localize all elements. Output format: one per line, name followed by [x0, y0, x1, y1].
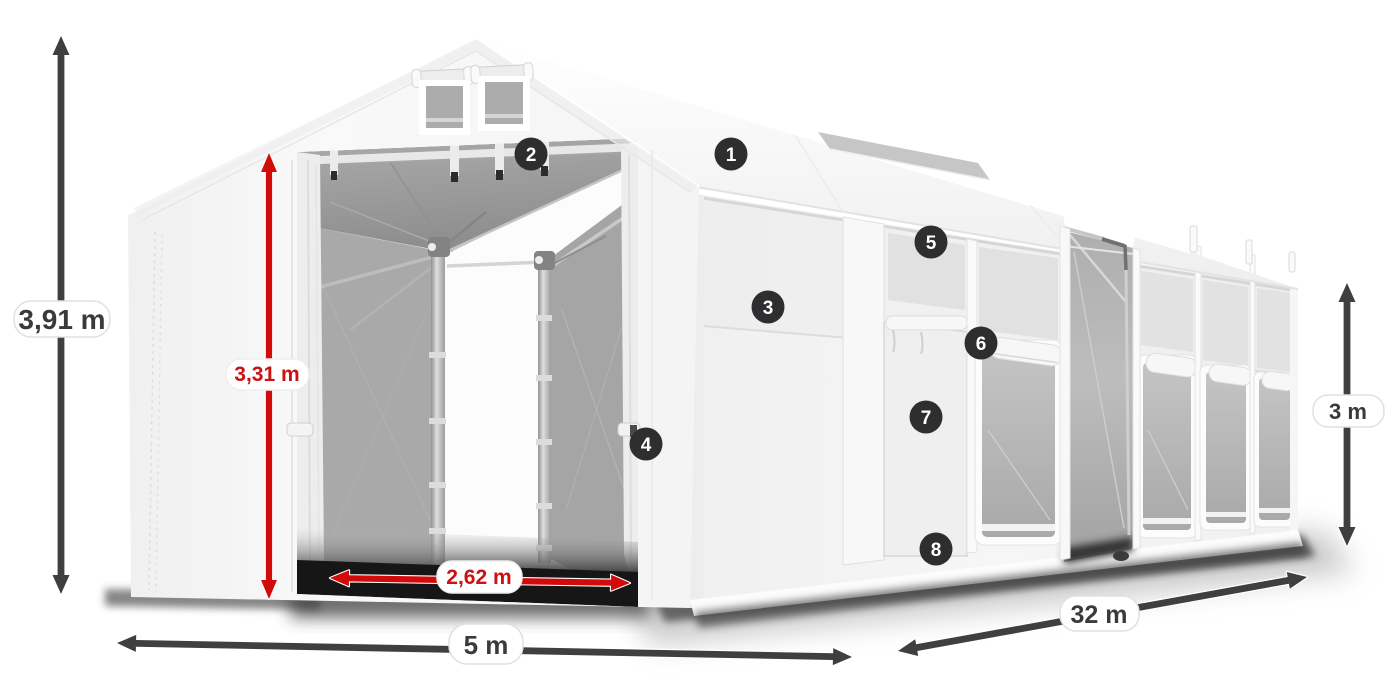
svg-text:6: 6 — [976, 334, 987, 355]
svg-text:3 m: 3 m — [1329, 399, 1367, 424]
svg-text:7: 7 — [921, 408, 932, 429]
svg-text:1: 1 — [726, 145, 737, 166]
svg-text:8: 8 — [931, 540, 942, 561]
svg-text:32 m: 32 m — [1071, 601, 1128, 629]
svg-text:2,62 m: 2,62 m — [446, 566, 511, 589]
svg-text:5: 5 — [926, 233, 937, 254]
svg-text:3,91 m: 3,91 m — [18, 304, 105, 335]
svg-text:3: 3 — [763, 298, 774, 319]
svg-text:5 m: 5 m — [464, 630, 509, 660]
svg-text:3,31 m: 3,31 m — [234, 363, 299, 386]
svg-text:4: 4 — [641, 435, 652, 456]
svg-text:2: 2 — [526, 145, 537, 166]
